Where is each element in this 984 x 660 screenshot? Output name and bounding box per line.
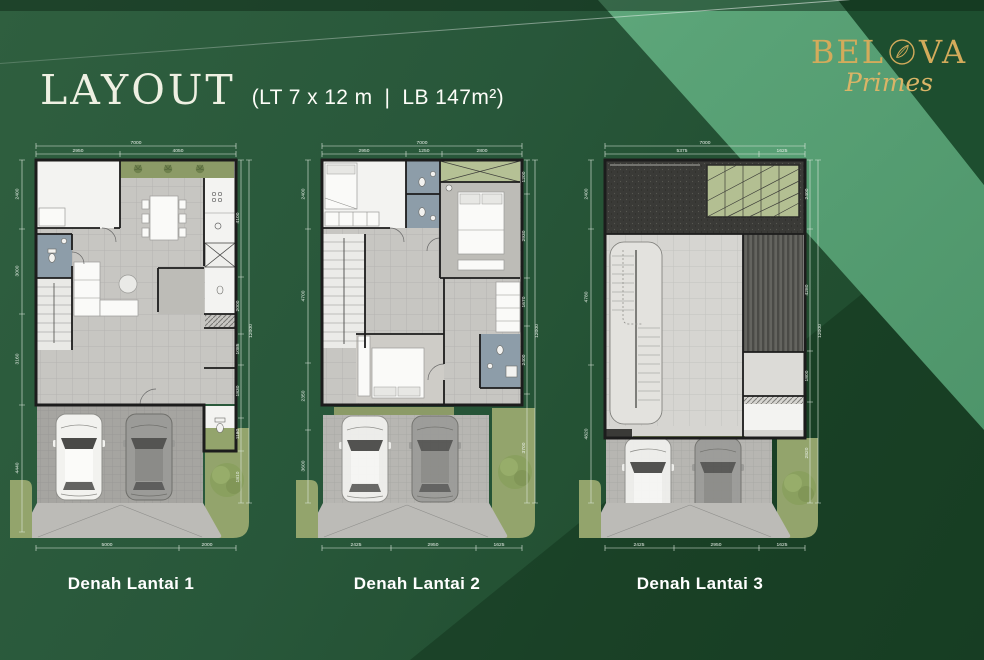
svg-text:1625: 1625 — [777, 148, 788, 154]
svg-text:2950: 2950 — [711, 542, 722, 548]
subtitle-separator: | — [385, 86, 391, 110]
svg-text:12000: 12000 — [534, 324, 540, 338]
bush — [782, 471, 816, 505]
svg-text:2425: 2425 — [634, 542, 645, 548]
svg-text:2400: 2400 — [301, 188, 307, 199]
garden-corner — [492, 408, 535, 538]
round-rug — [119, 275, 137, 293]
building-size-text: LB 147m²) — [402, 86, 504, 110]
svg-text:2000: 2000 — [235, 300, 241, 311]
svg-text:2950: 2950 — [428, 542, 439, 548]
stairs — [610, 242, 662, 424]
svg-text:3700: 3700 — [521, 442, 527, 453]
svg-text:4280: 4280 — [804, 284, 810, 295]
floor-plan-1-drawing: 7000 2950 4050 2400 3000 3160 4440 4100 … — [8, 138, 254, 574]
svg-text:1810: 1810 — [235, 471, 241, 482]
car-white — [339, 416, 391, 502]
svg-text:2400: 2400 — [15, 188, 21, 199]
svg-text:7000: 7000 — [417, 140, 428, 146]
svg-text:1200: 1200 — [521, 171, 527, 182]
svg-text:7000: 7000 — [131, 140, 142, 146]
svg-text:1625: 1625 — [494, 542, 505, 548]
svg-text:1085: 1085 — [235, 343, 241, 354]
caption-lantai-3: Denah Lantai 3 — [577, 574, 823, 594]
svg-text:5375: 5375 — [677, 148, 688, 154]
svg-text:1830: 1830 — [235, 385, 241, 396]
svg-text:4100: 4100 — [235, 212, 241, 223]
svg-text:2930: 2930 — [521, 230, 527, 241]
svg-text:1250: 1250 — [419, 148, 430, 154]
svg-text:12000: 12000 — [248, 324, 254, 338]
brand-logo: BEL VA Primes — [800, 36, 978, 97]
svg-text:2425: 2425 — [351, 542, 362, 548]
svg-text:2800: 2800 — [477, 148, 488, 154]
svg-text:4440: 4440 — [15, 462, 21, 473]
brand-script: Primes — [800, 68, 978, 97]
brand-name: BEL VA — [800, 36, 978, 68]
svg-text:4700: 4700 — [301, 290, 307, 301]
brand-name-right: VA — [919, 36, 967, 68]
floor-plan-2: 7000 2950 1250 2800 2400 4700 2350 3600 … — [294, 138, 542, 574]
leaf-medallion-icon — [887, 37, 917, 67]
car-white — [53, 414, 105, 500]
brand-name-left: BEL — [811, 36, 885, 68]
svg-text:3160: 3160 — [15, 353, 21, 364]
caption-lantai-1: Denah Lantai 1 — [8, 574, 254, 594]
floor-plan-3: 7000 5375 1625 2400 4780 4820 2400 4280 … — [577, 138, 825, 574]
svg-text:2400: 2400 — [804, 188, 810, 199]
svg-text:1800: 1800 — [804, 370, 810, 381]
svg-text:2950: 2950 — [73, 148, 84, 154]
svg-text:3600: 3600 — [301, 460, 307, 471]
svg-text:4050: 4050 — [173, 148, 184, 154]
floor-plan-3-drawing: 7000 5375 1625 2400 4780 4820 2400 4280 … — [577, 138, 823, 574]
svg-text:2820: 2820 — [804, 447, 810, 458]
svg-text:2400: 2400 — [584, 188, 590, 199]
top-edge-strip — [0, 0, 984, 11]
svg-text:1180: 1180 — [235, 428, 241, 439]
sofa — [74, 262, 100, 316]
svg-text:1670: 1670 — [521, 296, 527, 307]
car-gray — [409, 416, 461, 502]
svg-text:5000: 5000 — [102, 542, 113, 548]
svg-text:1625: 1625 — [777, 542, 788, 548]
svg-text:4780: 4780 — [584, 291, 590, 302]
slat-roof — [743, 234, 803, 352]
page-header: LAYOUT (LT 7 x 12 m | LB 147m²) — [40, 70, 504, 111]
lot-size-text: (LT 7 x 12 m — [252, 86, 373, 110]
caption-lantai-2: Denah Lantai 2 — [294, 574, 540, 594]
svg-text:2950: 2950 — [359, 148, 370, 154]
svg-text:12000: 12000 — [817, 324, 823, 338]
page-subtitle: (LT 7 x 12 m | LB 147m²) — [252, 86, 504, 110]
car-gray — [123, 414, 175, 500]
floor-plan-1: 7000 2950 4050 2400 3000 3160 4440 4100 … — [8, 138, 256, 574]
brochure-page: LAYOUT (LT 7 x 12 m | LB 147m²) BEL VA P… — [0, 0, 984, 660]
skylight — [707, 165, 799, 217]
page-title: LAYOUT — [40, 70, 236, 111]
svg-text:2350: 2350 — [301, 390, 307, 401]
floor-plan-2-drawing: 7000 2950 1250 2800 2400 4700 2350 3600 … — [294, 138, 540, 574]
svg-text:4820: 4820 — [584, 428, 590, 439]
svg-text:3000: 3000 — [15, 265, 21, 276]
svg-text:7000: 7000 — [700, 140, 711, 146]
svg-text:2000: 2000 — [202, 542, 213, 548]
svg-text:2400: 2400 — [521, 354, 527, 365]
